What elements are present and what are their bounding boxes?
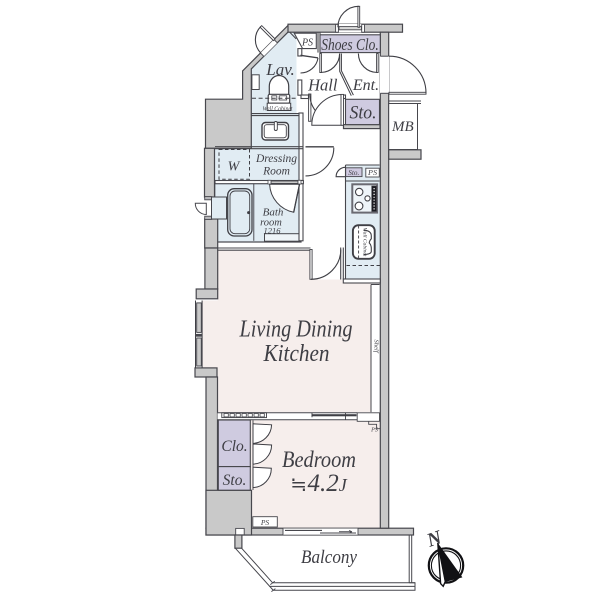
svg-text:Wall Cabinet: Wall Cabinet [263, 106, 293, 112]
svg-text:≒4.2J: ≒4.2J [290, 470, 348, 497]
svg-text:Clo.: Clo. [221, 438, 247, 455]
svg-text:PS: PS [301, 38, 313, 49]
svg-text:Shoes Clo.: Shoes Clo. [321, 35, 379, 54]
svg-text:Hall: Hall [307, 76, 338, 95]
svg-text:Sto.: Sto. [348, 169, 359, 177]
svg-text:PS: PS [370, 427, 378, 433]
svg-text:Wall Cabinet: Wall Cabinet [362, 228, 368, 257]
svg-text:Room: Room [262, 166, 290, 178]
svg-text:Ent.: Ent. [352, 77, 379, 94]
svg-text:Lav.: Lav. [265, 60, 295, 79]
svg-text:Dressing: Dressing [255, 153, 297, 165]
svg-text:W: W [228, 160, 241, 175]
svg-text:Sto.: Sto. [350, 104, 377, 124]
svg-text:Kitchen: Kitchen [263, 341, 330, 367]
svg-text:PS: PS [367, 169, 378, 177]
svg-text:1216: 1216 [264, 226, 282, 236]
svg-text:Sto.: Sto. [223, 472, 247, 489]
svg-text:MB: MB [391, 119, 414, 135]
svg-text:PS: PS [260, 518, 270, 527]
svg-text:Shelf: Shelf [373, 340, 380, 354]
svg-text:Balcony: Balcony [301, 547, 357, 568]
svg-text:Living Dining: Living Dining [239, 317, 353, 343]
